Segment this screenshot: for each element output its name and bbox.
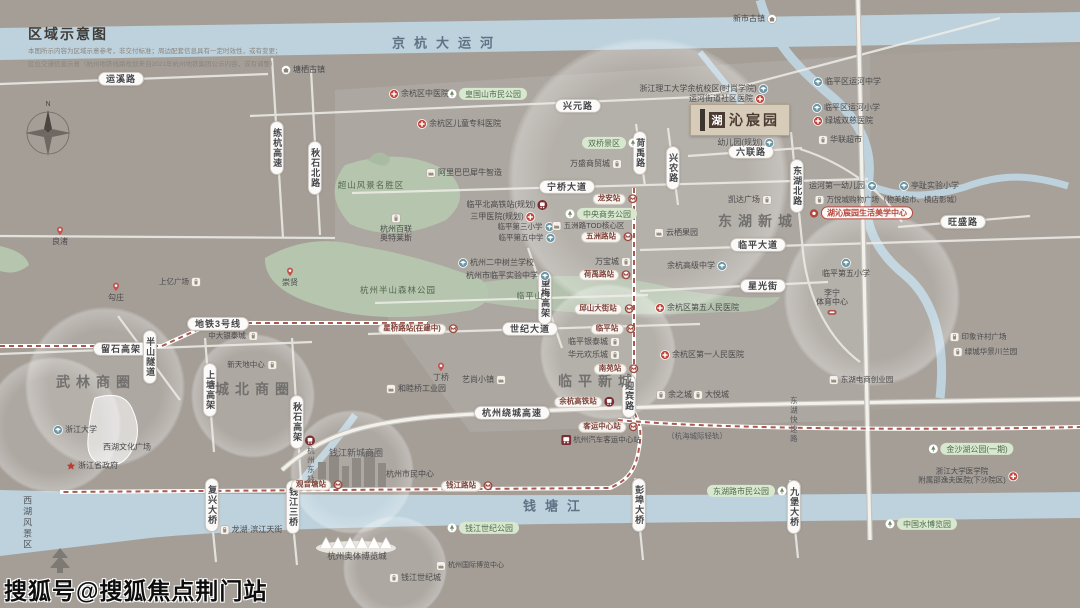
- poi-5th-people-hospital-label: 余杭区第五人民医院: [667, 303, 739, 312]
- sta-yuhang-hsr-label: 余杭高铁站: [554, 397, 602, 408]
- poi-qianjiang-century-city: 钱江世纪城: [389, 573, 441, 583]
- shop-icon: [762, 195, 772, 205]
- road-qiushi-north-label: 秋石北路: [308, 141, 322, 195]
- hospital-icon: [655, 303, 665, 313]
- bridge-jiubao-label: 九堡大桥: [787, 480, 801, 534]
- area-xihu-scenic: 西湖风景区: [22, 496, 32, 551]
- pin-liangzhu: 良渚: [52, 226, 68, 246]
- shop-icon: [610, 350, 620, 360]
- rail-icon: [538, 200, 548, 210]
- area-chengbei-label: 城北商圈: [215, 381, 295, 397]
- poi-lvcheng-hospital: 绿城双慈医院: [813, 116, 873, 126]
- poi-linping-exp-school-label: 杭州市临平实验中学: [466, 271, 538, 280]
- poi-lvcheng-lanyuan-label: 绿城华景川兰园: [965, 348, 1018, 357]
- area-donghu-newtown-label: 东湖新城: [718, 213, 798, 229]
- poi-zhongda-intime-label: 中大银泰城: [208, 332, 246, 341]
- factory-icon: [426, 168, 436, 178]
- sta-wuzhoulu: 五洲路站: [581, 232, 633, 243]
- shop-icon: [610, 337, 620, 347]
- sta-keyun-center: 客运中心站: [578, 422, 638, 433]
- poi-donghu-ecommerce: 东湖电商创业园: [829, 375, 894, 385]
- shop-icon: [191, 277, 201, 287]
- poi-yunhe-community-hospital-label: 运河街道社区医院: [689, 94, 753, 103]
- poi-tingzhi-primary-label: 亭趾实验小学: [911, 181, 959, 190]
- town-icon: [767, 14, 777, 24]
- school-icon: [765, 138, 775, 148]
- river-qiantang-label: 钱塘江: [523, 500, 589, 515]
- poi-yunhe-primary-label: 临平区运河小学: [824, 103, 880, 112]
- poi-linping-3rd-primary: 临平第三小学: [498, 222, 555, 232]
- sta-qianjianglu: 钱江路站: [441, 481, 493, 492]
- school-icon: [812, 103, 822, 113]
- road-donghu-north-label: 东湖北路: [790, 159, 804, 213]
- road-banshan-tunnel: 半山隧道: [143, 330, 157, 384]
- poi-wanbaocheng: 万宝城: [595, 257, 631, 267]
- poi-xihu-culture-square: 西湖文化广场: [103, 442, 151, 451]
- poi-kindergarten-planned: 幼儿园(规划): [717, 138, 774, 148]
- star-icon: [66, 461, 76, 471]
- area-linping-newtown-label: 临平新城: [558, 373, 638, 389]
- disclaimer-line1: 本图所示内容为区域示意参考，非交付标准；周边配套信息具有一定时效性，或有变更；: [28, 47, 358, 57]
- school-icon: [540, 271, 550, 281]
- poi-yunqi-orchard-label: 云栖果园: [666, 228, 698, 237]
- poi-provincial-gov: 浙江省政府: [66, 461, 118, 471]
- rail-hanghai-note-label: （杭海城际轻轨）: [667, 433, 727, 442]
- poi-shangyi-plaza-label: 上亿广场: [159, 278, 189, 287]
- metro-line3-tag: 地铁3号线: [187, 317, 249, 331]
- poi-banshan-forest-park: 杭州半山森林公园: [360, 286, 436, 296]
- poi-hz2-shulan-school-label: 杭州二中树兰学校: [470, 258, 534, 267]
- bridge-jiubao: 九堡大桥: [787, 480, 801, 534]
- poi-bailian-outlets-label: 杭州百联 奥特莱斯: [380, 224, 412, 242]
- school-icon: [458, 258, 468, 268]
- pin-liangzhu-label: 良渚: [52, 237, 68, 246]
- road-yunxi: 运溪路: [98, 72, 144, 86]
- poi-3a-hospital-planned: 三甲医院(规划): [470, 212, 535, 222]
- sta-qiushan-street: 邱山大街站: [574, 304, 634, 315]
- poi-linping-exp-school: 杭州市临平实验中学: [466, 271, 550, 281]
- poi-children-hospital: 余杭区儿童专科医院: [417, 119, 501, 129]
- poi-yunhe-1st-kindergarten-label: 运河第一幼儿园: [809, 181, 865, 190]
- area-linping-newtown: 临平新城: [558, 373, 638, 389]
- poi-zhongda-intime: 中大银泰城: [208, 331, 258, 341]
- road-wangsheng: 旺盛路: [940, 215, 986, 229]
- poi-donghulu-citizen-park-label: 东湖路市民公园: [707, 485, 775, 497]
- poi-provincial-gov-label: 浙江省政府: [78, 461, 118, 470]
- poi-longfor-binjiang-label: 龙湖·滨江天街: [232, 525, 283, 534]
- dot-icon: [809, 208, 819, 218]
- hospital-icon: [755, 94, 765, 104]
- poi-yuhang-tcm-hospital: 余杭区中医院: [389, 89, 449, 99]
- school-icon: [53, 425, 63, 435]
- poi-yishang-town-label: 艺尚小镇: [462, 375, 494, 384]
- poi-zstu-campus-label: 浙江理工大学余杭校区(时尚学院): [639, 84, 756, 93]
- pin-gouzhuang-label: 勾庄: [108, 293, 124, 302]
- hospital-icon: [526, 212, 536, 222]
- rail-icon: [604, 397, 614, 407]
- river-grand-canal: 京杭大运河: [392, 37, 502, 52]
- poi-kindergarten-planned-label: 幼儿园(规划): [717, 138, 762, 147]
- poi-yishang-town: 艺尚小镇: [462, 375, 506, 385]
- pin-gouzhuang: 勾庄: [108, 282, 124, 302]
- shop-icon: [656, 390, 666, 400]
- poi-xihu-culture-square-label: 西湖文化广场: [103, 442, 151, 451]
- tree-icon: [885, 519, 895, 529]
- sta-qiushan-street-label: 邱山大街站: [574, 304, 622, 315]
- poi-linping-5th-middle-label: 临平第五中学: [499, 234, 544, 243]
- tree-icon: [777, 486, 787, 496]
- poi-yunhe-1st-kindergarten: 运河第一幼儿园: [809, 181, 877, 191]
- poi-1st-people-hospital-label: 余杭区第一人民医院: [672, 350, 744, 359]
- sta-guanyintang: 观音塘站: [291, 480, 343, 491]
- area-chengbei: 城北商圈: [215, 381, 295, 397]
- factory-icon: [654, 228, 664, 238]
- poi-alibaba-xiniu-label: 阿里巴巴犀牛智造: [438, 168, 502, 177]
- poi-xintiandi-center: 新天地中心: [227, 360, 277, 370]
- poi-qianjiang-century-park-label: 钱江世纪公园: [459, 522, 519, 534]
- area-wulin-label: 武林商圈: [56, 374, 136, 390]
- poi-kaida-plaza: 凯达广场: [728, 195, 772, 205]
- poi-wanyuecheng-mall-label: 万悦城购物广场（物美超市、横店影城）: [827, 196, 962, 205]
- sta-longan: 龙安站: [593, 194, 638, 205]
- poi-kaida-plaza-label: 凯达广场: [728, 195, 760, 204]
- poi-linpingshan: 临平山: [517, 291, 544, 300]
- poi-huangguoshan-park: 皇国山市民公园: [447, 88, 527, 100]
- poi-chaoshan-scenic-label: 超山风景名胜区: [338, 181, 405, 191]
- poi-intl-expo-center-label: 杭州国际博览中心: [448, 562, 504, 570]
- rail-hanghai-note: （杭海城际轻轨）: [667, 433, 727, 442]
- tree-icon: [928, 444, 938, 454]
- poi-citizen-center-label: 杭州市民中心: [386, 469, 434, 478]
- factory-icon: [436, 561, 446, 571]
- area-wulin: 武林商圈: [56, 374, 136, 390]
- pin-dingqiao: 丁桥: [433, 362, 449, 382]
- area-xihu-scenic-label: 西湖风景区: [22, 496, 32, 551]
- shop-icon: [248, 331, 258, 341]
- school-icon: [717, 261, 727, 271]
- river-grand-canal-label: 京杭大运河: [392, 37, 502, 52]
- poi-life-aesthetics-center-label: 湖沁宸园生活美学中心: [821, 206, 913, 219]
- area-qianjiang-cbd: 钱江新城商圈: [329, 448, 383, 458]
- map-labels-layer: 运溪路兴元路宁桥大道六联路临平大道星光街旺盛路世纪大道杭州绕城高速留石高架地铁3…: [0, 0, 1080, 608]
- road-xingguang: 星光街: [740, 279, 786, 293]
- poi-linping-5th-primary-label: 临平第五小学: [822, 269, 870, 278]
- poi-huayuan-happycity-label: 华元欢乐城: [568, 350, 608, 359]
- road-linping-ave-label: 临平大道: [730, 238, 786, 252]
- road-xingnong-label: 兴农路: [666, 146, 680, 190]
- poi-linping-5th-primary: 临平第五小学: [822, 258, 870, 278]
- poi-yunhe-primary: 临平区运河小学: [812, 103, 880, 113]
- building-bar-icon: [700, 109, 705, 131]
- sta-linping-label: 临平站: [591, 324, 624, 335]
- school-icon: [759, 84, 769, 94]
- poi-srrsh-hospital-label: 浙江大学医学院 附属邵逸夫医院(下沙院区): [918, 467, 1006, 484]
- metro-icon: [333, 480, 343, 490]
- sta-keyun-center-label: 客运中心站: [578, 422, 626, 433]
- road-xingguang-label: 星光街: [740, 279, 786, 293]
- poi-zstu-campus: 浙江理工大学余杭校区(时尚学院): [639, 84, 768, 94]
- poi-bus-terminal-label: 杭州汽车客运中心站: [573, 436, 641, 445]
- pin-dingqiao-label: 丁桥: [433, 373, 449, 382]
- sta-nanyuan: 南苑站: [594, 364, 639, 375]
- area-donghu-newtown: 东湖新城: [718, 213, 798, 229]
- poi-xinshi-town-label: 新市古镇: [733, 14, 765, 23]
- sta-hangzhou-east-label: 杭州东站: [306, 447, 315, 485]
- poi-huangguoshan-park-label: 皇国山市民公园: [459, 88, 527, 100]
- shop-icon: [953, 347, 963, 357]
- tree-icon: [447, 89, 457, 99]
- factory-icon: [829, 375, 839, 385]
- poi-water-expo-park: 中国水博览园: [885, 518, 957, 530]
- poi-cbd-park-label: 中央商务公园: [577, 208, 637, 220]
- pin-chongxian: 崇贤: [282, 267, 298, 287]
- poi-children-hospital-label: 余杭区儿童专科医院: [429, 119, 501, 128]
- poi-shuangqiao-scenic-label: 双桥景区: [582, 137, 626, 149]
- tree-icon: [447, 523, 457, 533]
- metro-icon: [621, 270, 631, 280]
- poi-lining-sports-label: 李宁 体育中心: [816, 288, 848, 306]
- poi-aoti-expo-label: 杭州奥体博览城: [327, 552, 387, 562]
- shop-icon: [391, 213, 401, 223]
- poi-wuzhoulu-tod-label: 五洲路TOD核心区: [564, 222, 625, 231]
- poi-lining-sports: 李宁 体育中心: [816, 288, 848, 317]
- shop-icon: [612, 159, 622, 169]
- poi-shuangqiao-scenic: 双桥景区: [582, 137, 638, 149]
- hospital-icon: [813, 116, 823, 126]
- road-liushi-label: 留石高架: [93, 342, 149, 356]
- poi-intime-city: 临平银泰城: [568, 337, 620, 347]
- metro-icon: [628, 422, 638, 432]
- sta-wuzhoulu-label: 五洲路站: [581, 232, 621, 243]
- metro-icon: [623, 232, 633, 242]
- poi-yuhang-senior-high: 余杭高级中学: [667, 261, 727, 271]
- poi-tingzhi-primary: 亭趾实验小学: [899, 181, 959, 191]
- disclaimer-line2: 区位交通信息示意（杭州地铁线路规划来自2021年杭州地铁集团公示内容，或有调整）: [28, 60, 358, 70]
- metro-icon: [627, 194, 637, 204]
- area-map: N 区域示意图 本图所示内容为区域示意参考，非交付标准；周边配套信息具有一定时效…: [0, 0, 1080, 608]
- road-ningqiao: 宁桥大道: [539, 180, 595, 194]
- poi-cbd-park: 中央商务公园: [565, 208, 637, 220]
- poi-donghu-ecommerce-label: 东湖电商创业园: [841, 376, 894, 385]
- poi-lvcheng-hospital-label: 绿城双慈医院: [825, 116, 873, 125]
- poi-lvcheng-lanyuan: 绿城华景川兰园: [953, 347, 1018, 357]
- sta-heyulu: 荷禹路站: [579, 270, 631, 281]
- poi-zhejiang-university-label: 浙江大学: [65, 425, 97, 434]
- metro-line3-tag-label: 地铁3号线: [187, 317, 249, 331]
- poi-yuhang-senior-high-label: 余杭高级中学: [667, 261, 715, 270]
- poi-aoti-expo: 杭州奥体博览城: [327, 552, 387, 562]
- poi-wuzhoulu-tod: 五洲路TOD核心区: [552, 221, 625, 231]
- sta-linping: 临平站: [591, 324, 636, 335]
- poi-dayuecheng: 大悦城: [693, 390, 729, 400]
- poi-linpingshan-label: 临平山: [517, 291, 544, 300]
- road-qiushi-viaduct: 秋石高架: [290, 395, 304, 449]
- poi-1st-people-hospital: 余杭区第一人民医院: [660, 350, 744, 360]
- road-liushi: 留石高架: [93, 342, 149, 356]
- poi-yinxiang-xucun: 印象许村广场: [950, 332, 1007, 342]
- road-linping-ave: 临平大道: [730, 238, 786, 252]
- shop-icon: [389, 573, 399, 583]
- school-icon: [867, 181, 877, 191]
- shop-icon: [818, 135, 828, 145]
- poi-jinshahu-park: 金沙湖公园(一期): [928, 443, 1013, 455]
- school-icon: [899, 181, 909, 191]
- road-lianhang-label: 练杭高速: [270, 121, 284, 175]
- poi-wansheng-mall-label: 万盛商贸城: [570, 159, 610, 168]
- poi-hemuqiao-industrial: 和睦桥工业园: [386, 384, 446, 394]
- poi-yunhe-community-hospital: 运河街道社区医院: [689, 94, 765, 104]
- road-donghu-express-label: 东湖快速路: [789, 396, 798, 444]
- school-icon: [546, 233, 556, 243]
- poi-banshan-forest-park-label: 杭州半山森林公园: [360, 286, 436, 296]
- poi-3a-hospital-planned-label: 三甲医院(规划): [470, 212, 523, 221]
- hospital-icon: [660, 350, 670, 360]
- pin-icon: [436, 362, 446, 372]
- shop-icon: [220, 525, 230, 535]
- tree-icon: [628, 138, 638, 148]
- bridge-fuxing-label: 复兴大桥: [205, 478, 219, 532]
- metro-icon: [483, 481, 493, 491]
- road-raocheng: 杭州绕城高速: [474, 406, 550, 420]
- bridge-pengbu: 彭埠大桥: [632, 478, 646, 532]
- factory-icon: [386, 384, 396, 394]
- poi-hemuqiao-industrial-label: 和睦桥工业园: [398, 384, 446, 393]
- poi-qianjiang-century-city-label: 钱江世纪城: [401, 573, 441, 582]
- hospital-icon: [389, 89, 399, 99]
- sta-nanyuan-label: 南苑站: [594, 364, 627, 375]
- poi-life-aesthetics-center: 湖沁宸园生活美学中心: [809, 206, 913, 219]
- hospital-icon: [417, 119, 427, 129]
- road-donghu-express: 东湖快速路: [789, 396, 798, 444]
- metro-icon: [625, 324, 635, 334]
- poi-citizen-center: 杭州市民中心: [386, 469, 434, 478]
- map-title: 区域示意图: [28, 24, 358, 44]
- poi-yuzhicheng: 余之城: [656, 390, 692, 400]
- shop-icon: [815, 195, 825, 205]
- shop-icon: [621, 257, 631, 267]
- road-wangsheng-label: 旺盛路: [940, 215, 986, 229]
- school-icon: [813, 77, 823, 87]
- river-qiantang: 钱塘江: [523, 500, 589, 515]
- sta-longan-label: 龙安站: [593, 194, 626, 205]
- area-qianjiang-cbd-label: 钱江新城商圈: [329, 448, 383, 458]
- pin-icon: [285, 267, 295, 277]
- sta-xingqiaolu: 星桥路站(在建中): [378, 324, 458, 335]
- sta-xingqiaolu-label: 星桥路站(在建中): [378, 324, 446, 335]
- rail-icon: [305, 436, 315, 446]
- poi-hualian-market: 华联超市: [818, 135, 862, 145]
- poi-bailian-outlets: 杭州百联 奥特莱斯: [380, 213, 412, 242]
- sta-yuhang-hsr: 余杭高铁站: [554, 397, 614, 408]
- poi-bus-terminal: 杭州汽车客运中心站: [561, 435, 641, 445]
- poi-dayuecheng-label: 大悦城: [705, 390, 729, 399]
- poi-linping-5th-middle: 临平第五中学: [499, 233, 556, 243]
- poi-zhejiang-university: 浙江大学: [53, 425, 97, 435]
- school-icon: [841, 258, 851, 268]
- project-logo: 湖 沁宸园: [690, 104, 790, 136]
- road-yunxi-label: 运溪路: [98, 72, 144, 86]
- poi-intime-city-label: 临平银泰城: [568, 337, 608, 346]
- road-qiushi-viaduct-label: 秋石高架: [290, 395, 304, 449]
- poi-hualian-market-label: 华联超市: [830, 135, 862, 144]
- poi-intl-expo-center: 杭州国际博览中心: [436, 561, 504, 571]
- metro-icon: [624, 304, 634, 314]
- poi-yunhe-middle: 临平区运河中学: [813, 77, 881, 87]
- road-banshan-tunnel-label: 半山隧道: [143, 330, 157, 384]
- pin-icon: [111, 282, 121, 292]
- metro-icon: [448, 324, 458, 334]
- poi-yunqi-orchard: 云栖果园: [654, 228, 698, 238]
- bridge-pengbu-label: 彭埠大桥: [632, 478, 646, 532]
- poi-linpingbei-hsr-label: 临平北高铁站(规划): [466, 200, 535, 209]
- poi-qianjiang-century-park: 钱江世纪公园: [447, 522, 519, 534]
- poi-yuhang-tcm-hospital-label: 余杭区中医院: [401, 89, 449, 98]
- sta-hangzhou-east: 杭州东站: [305, 436, 315, 485]
- poi-xinshi-town: 新市古镇: [733, 14, 777, 24]
- poi-huayuan-happycity: 华元欢乐城: [568, 350, 620, 360]
- sta-heyulu-label: 荷禹路站: [579, 270, 619, 281]
- poi-shangyi-plaza: 上亿广场: [159, 277, 201, 287]
- bus-icon: [561, 435, 571, 445]
- poi-jinshahu-park-label: 金沙湖公园(一期): [940, 443, 1013, 455]
- poi-linping-3rd-primary-label: 临平第三小学: [498, 223, 543, 232]
- poi-yunhe-middle-label: 临平区运河中学: [825, 77, 881, 86]
- shop-icon: [267, 360, 277, 370]
- road-lianhang: 练杭高速: [270, 121, 284, 175]
- poi-yuzhicheng-label: 余之城: [668, 390, 692, 399]
- poi-hz2-shulan-school: 杭州二中树兰学校: [458, 258, 534, 268]
- shop-icon: [950, 332, 960, 342]
- metro-icon: [628, 364, 638, 374]
- factory-icon: [496, 375, 506, 385]
- poi-yinxiang-xucun-label: 印象许村广场: [962, 333, 1007, 342]
- logo-rest: 沁宸园: [729, 110, 780, 130]
- road-xingnong: 兴农路: [666, 146, 680, 190]
- bridge-fuxing: 复兴大桥: [205, 478, 219, 532]
- road-qiushi-north: 秋石北路: [308, 141, 322, 195]
- poi-wansheng-mall: 万盛商贸城: [570, 159, 622, 169]
- tree-icon: [565, 209, 575, 219]
- factory-icon: [552, 221, 562, 231]
- watermark: 搜狐号@搜狐焦点荆门站: [4, 572, 267, 606]
- road-xingyuan-label: 兴元路: [555, 99, 601, 113]
- road-raocheng-label: 杭州绕城高速: [474, 406, 550, 420]
- hospital-icon: [1008, 471, 1018, 481]
- poi-xintiandi-center-label: 新天地中心: [227, 361, 265, 370]
- logo-first-char: 湖: [709, 112, 725, 128]
- shop-icon: [693, 390, 703, 400]
- poi-linpingbei-hsr: 临平北高铁站(规划): [466, 200, 547, 210]
- stadium-icon: [827, 308, 837, 318]
- poi-srrsh-hospital: 浙江大学医学院 附属邵逸夫医院(下沙院区): [918, 467, 1018, 484]
- pin-chongxian-label: 崇贤: [282, 278, 298, 287]
- poi-wanbaocheng-label: 万宝城: [595, 257, 619, 266]
- poi-donghulu-citizen-park: 东湖路市民公园: [707, 485, 787, 497]
- poi-water-expo-park-label: 中国水博览园: [897, 518, 957, 530]
- poi-chaoshan-scenic: 超山风景名胜区: [338, 181, 405, 191]
- road-ningqiao-label: 宁桥大道: [539, 180, 595, 194]
- road-donghu-north: 东湖北路: [790, 159, 804, 213]
- poi-longfor-binjiang: 龙湖·滨江天街: [220, 525, 283, 535]
- legend: 区域示意图 本图所示内容为区域示意参考，非交付标准；周边配套信息具有一定时效性，…: [28, 24, 358, 70]
- poi-5th-people-hospital: 余杭区第五人民医院: [655, 303, 739, 313]
- poi-alibaba-xiniu: 阿里巴巴犀牛智造: [426, 168, 502, 178]
- pin-icon: [55, 226, 65, 236]
- sta-qianjianglu-label: 钱江路站: [441, 481, 481, 492]
- poi-wanyuecheng-mall: 万悦城购物广场（物美超市、横店影城）: [815, 195, 962, 205]
- road-xingyuan: 兴元路: [555, 99, 601, 113]
